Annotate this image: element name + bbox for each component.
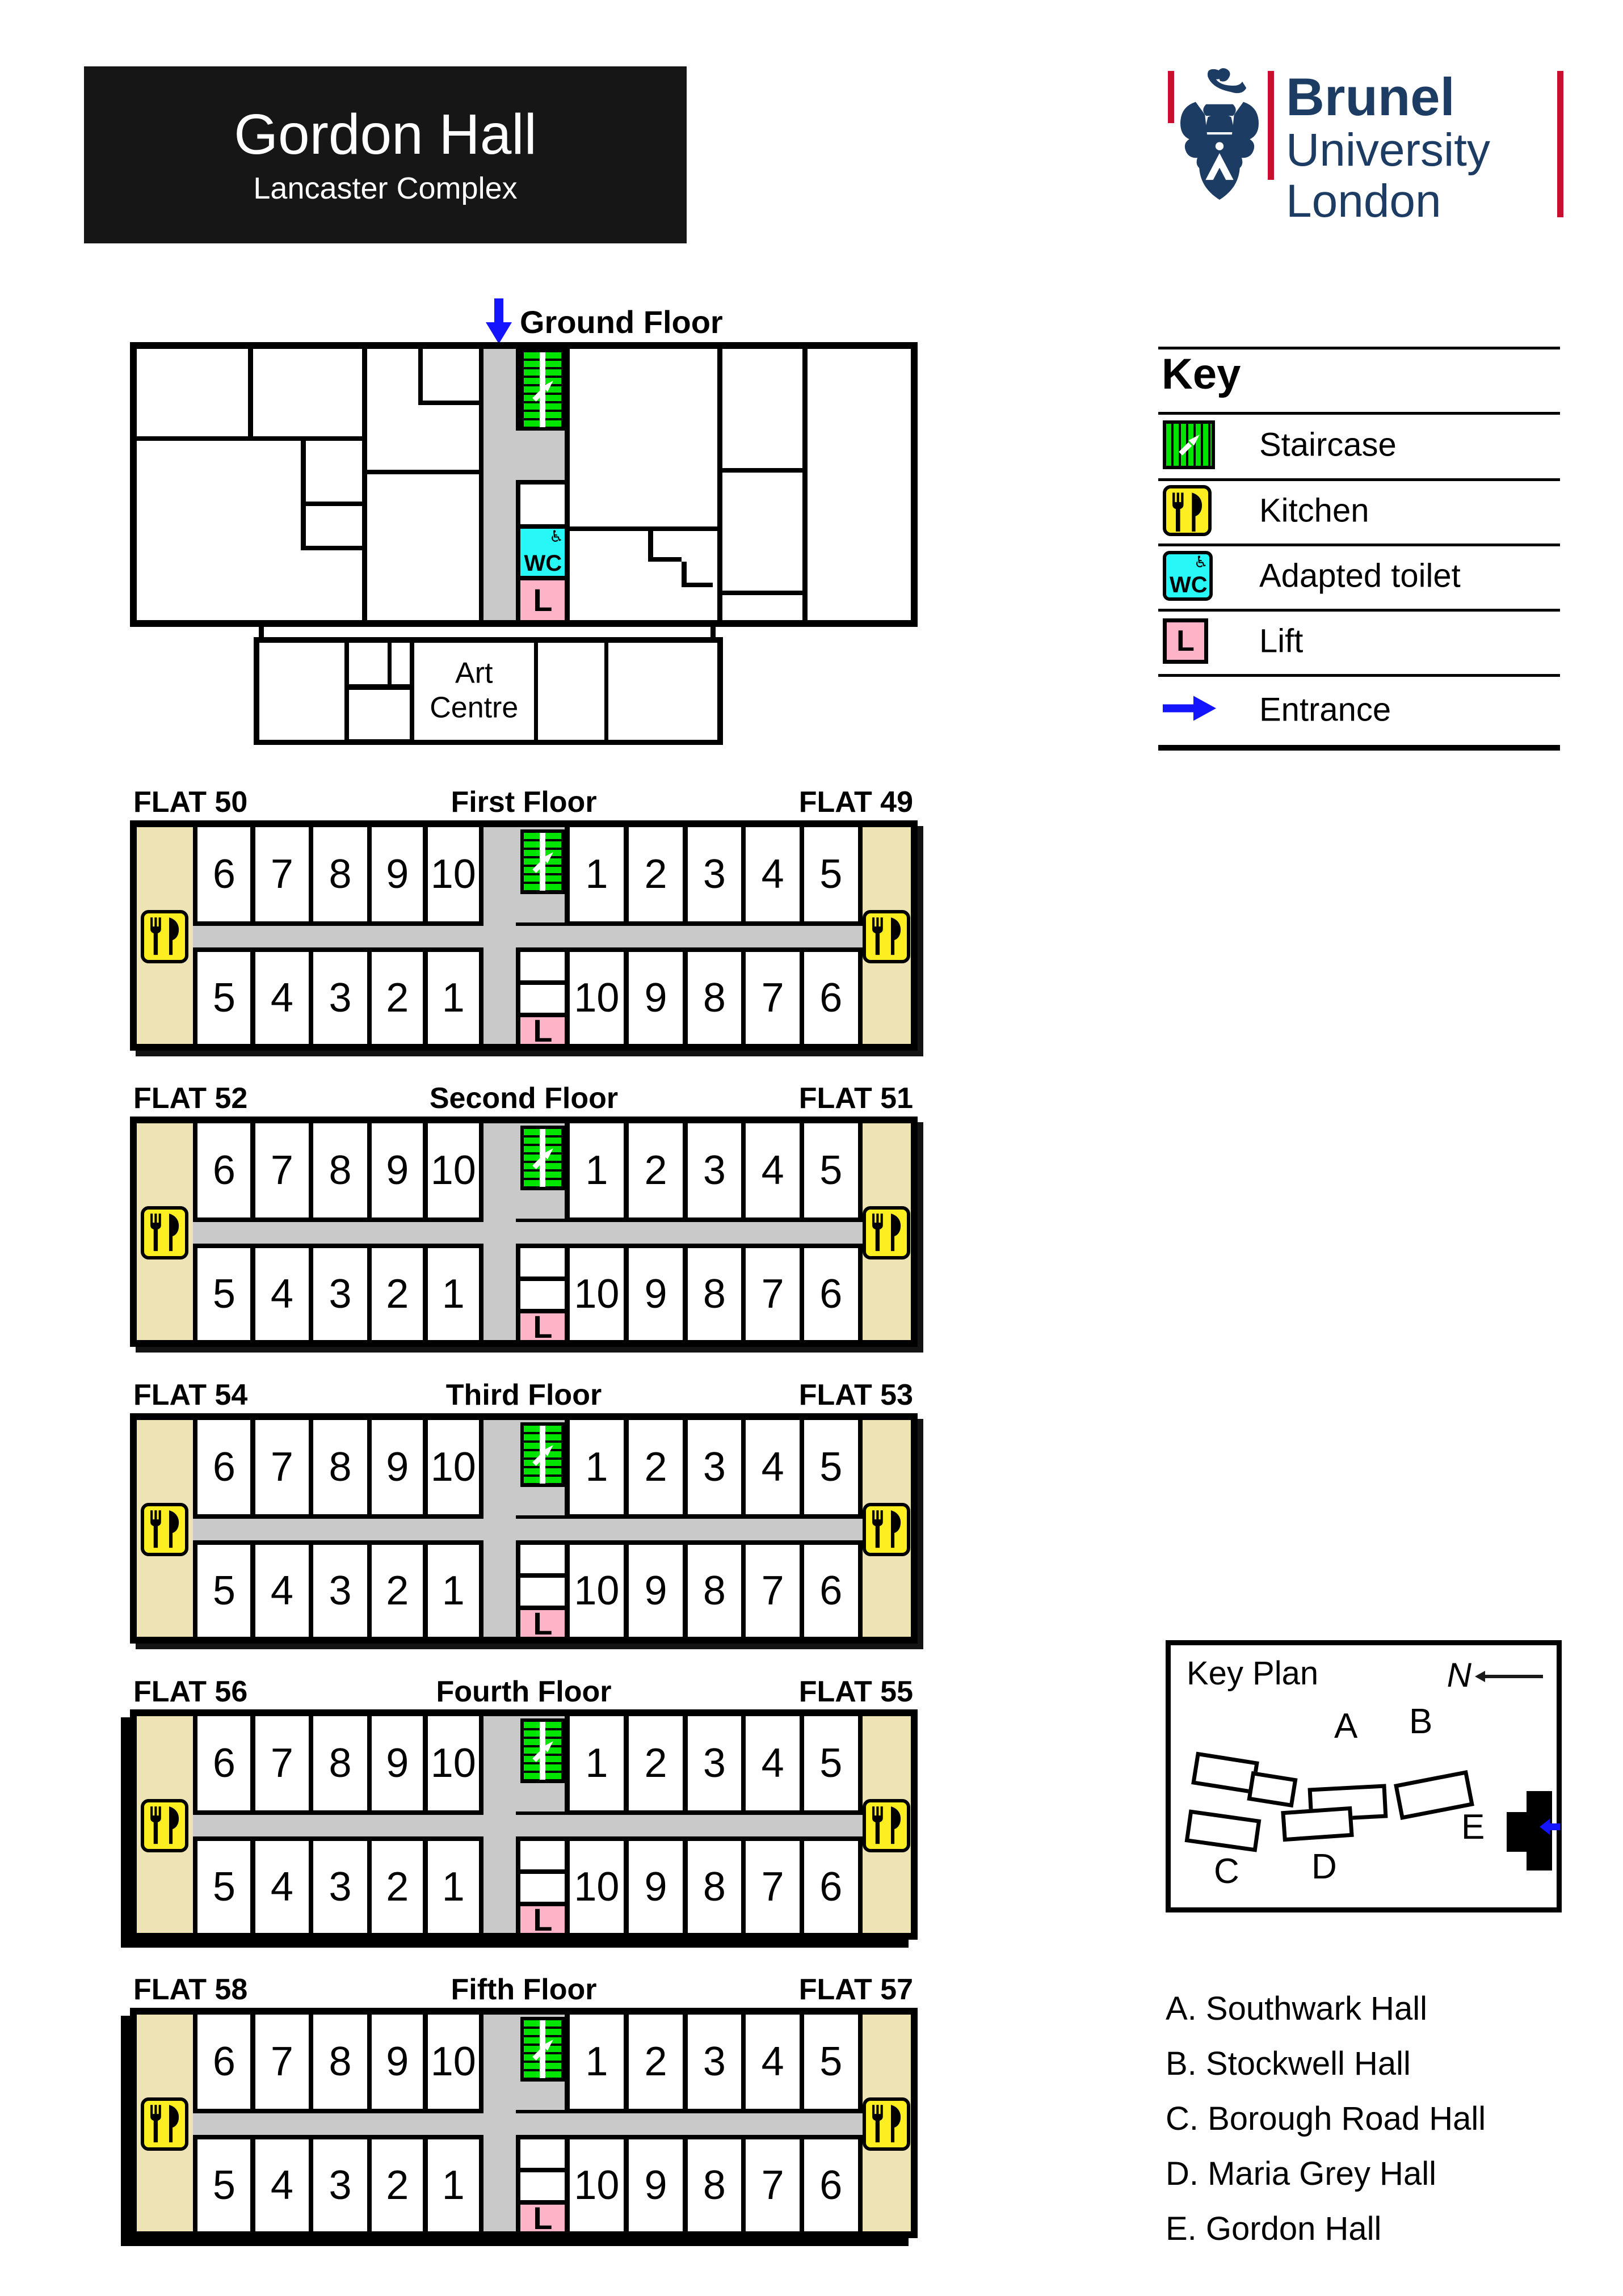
flat-label-right: FLAT 49 bbox=[799, 787, 913, 817]
room: 5 bbox=[197, 1545, 250, 1637]
room-number: 4 bbox=[271, 1568, 293, 1614]
room-number: 7 bbox=[271, 2038, 293, 2085]
logo-line-london: London bbox=[1286, 176, 1490, 227]
room-number: 6 bbox=[213, 2038, 236, 2085]
flat-label-right: FLAT 53 bbox=[799, 1380, 913, 1410]
room: 1 bbox=[570, 827, 624, 921]
hall-list-item: C. Borough Road Hall bbox=[1166, 2091, 1620, 2146]
room-number: 3 bbox=[329, 2162, 352, 2209]
logo-line-university: University bbox=[1286, 125, 1490, 176]
room-number: 5 bbox=[819, 1147, 842, 1194]
room-number: 1 bbox=[585, 1444, 608, 1490]
corridor-horizontal bbox=[193, 926, 863, 947]
room-number: 3 bbox=[703, 1147, 726, 1194]
lift-icon: L bbox=[520, 2205, 565, 2231]
room: 9 bbox=[372, 1420, 423, 1514]
kitchen-icon bbox=[863, 910, 910, 963]
room: 9 bbox=[372, 827, 423, 921]
room: 6 bbox=[197, 827, 250, 921]
hall-list-item: D. Maria Grey Hall bbox=[1166, 2146, 1620, 2201]
lift-icon: L bbox=[520, 1906, 565, 1933]
kitchen-icon bbox=[1163, 485, 1212, 536]
lift-label: L bbox=[533, 1012, 552, 1049]
room: 2 bbox=[629, 1123, 683, 1217]
art-room bbox=[349, 643, 388, 685]
floor-title: Fifth Floor bbox=[451, 1975, 596, 2004]
staircase-icon bbox=[520, 2017, 565, 2082]
room-number: 6 bbox=[213, 1444, 236, 1490]
logo-text: Brunel University London bbox=[1286, 69, 1490, 227]
room-number: 7 bbox=[271, 1147, 293, 1194]
room: 7 bbox=[255, 1123, 309, 1217]
room-number: 3 bbox=[703, 1740, 726, 1787]
room: 10 bbox=[428, 827, 479, 921]
gf-room bbox=[367, 474, 479, 620]
hall-list-item: E. Gordon Hall bbox=[1166, 2201, 1620, 2256]
kitchen-icon bbox=[144, 2101, 185, 2147]
kitchen-icon bbox=[144, 913, 185, 960]
halls-list: A. Southwark HallB. Stockwell HallC. Bor… bbox=[1166, 1981, 1620, 2256]
room-number: 5 bbox=[819, 851, 842, 898]
room-number: 9 bbox=[386, 2038, 409, 2085]
key-title: Key bbox=[1162, 353, 1241, 396]
page-subtitle: Lancaster Complex bbox=[253, 173, 517, 204]
key-separator bbox=[1158, 347, 1560, 349]
room: 7 bbox=[255, 827, 309, 921]
room: 7 bbox=[746, 952, 799, 1044]
art-room bbox=[392, 643, 410, 685]
key-separator bbox=[1158, 674, 1560, 677]
room-number: 1 bbox=[442, 1864, 465, 1910]
room: 4 bbox=[255, 2139, 309, 2231]
hall-shape-d bbox=[1281, 1806, 1353, 1842]
staircase-icon bbox=[1163, 420, 1215, 469]
room-number: 3 bbox=[329, 975, 352, 1021]
room: 7 bbox=[746, 1248, 799, 1340]
room: 2 bbox=[629, 827, 683, 921]
room-number: 9 bbox=[644, 975, 667, 1021]
flat-label-left: FLAT 56 bbox=[133, 1677, 247, 1707]
room: 8 bbox=[688, 952, 741, 1044]
room: 1 bbox=[428, 2139, 479, 2231]
room: 2 bbox=[372, 952, 423, 1044]
room-number: 8 bbox=[703, 1568, 726, 1614]
room-number: 10 bbox=[574, 1271, 619, 1317]
room-number: 9 bbox=[644, 1271, 667, 1317]
art-centre-block: Art Centre bbox=[254, 637, 723, 745]
room-number: 10 bbox=[431, 1740, 476, 1787]
gf-room bbox=[413, 405, 479, 469]
room: 7 bbox=[746, 1545, 799, 1637]
flat-label-left: FLAT 54 bbox=[133, 1380, 247, 1410]
room-number: 2 bbox=[644, 1444, 667, 1490]
room: 9 bbox=[629, 1248, 683, 1340]
wall bbox=[653, 557, 681, 562]
room: 6 bbox=[197, 1420, 250, 1514]
room-number: 10 bbox=[431, 1147, 476, 1194]
service-room bbox=[520, 1578, 565, 1606]
lift-label: L bbox=[533, 582, 552, 618]
key-separator bbox=[1158, 412, 1560, 415]
staircase-icon bbox=[520, 829, 565, 894]
kitchen-icon bbox=[866, 2101, 907, 2147]
room-number: 2 bbox=[644, 2038, 667, 2085]
room: 9 bbox=[629, 1841, 683, 1933]
kitchen-icon bbox=[144, 1210, 185, 1256]
floor-label-row: FLAT 56 Fourth Floor FLAT 55 bbox=[130, 1671, 918, 1707]
wheelchair-icon: ♿ bbox=[549, 529, 564, 545]
service-room bbox=[520, 2139, 565, 2168]
room: 4 bbox=[255, 1248, 309, 1340]
kitchen-icon bbox=[866, 913, 907, 960]
gf-room bbox=[295, 550, 362, 620]
kitchen-icon bbox=[141, 910, 188, 963]
gf-room bbox=[570, 349, 718, 526]
title-block: Gordon Hall Lancaster Complex bbox=[84, 66, 687, 243]
key-item-label: Adapted toilet bbox=[1259, 557, 1461, 595]
stair-arrow-icon bbox=[529, 1443, 556, 1469]
room: 9 bbox=[629, 1545, 683, 1637]
room: 8 bbox=[313, 827, 367, 921]
service-room bbox=[520, 985, 565, 1013]
room: 5 bbox=[197, 2139, 250, 2231]
kitchen-icon bbox=[144, 1506, 185, 1553]
floor-label-row: FLAT 58 Fifth Floor FLAT 57 bbox=[130, 1969, 918, 2004]
wall bbox=[648, 531, 653, 561]
room: 1 bbox=[570, 2015, 624, 2109]
floor-label-row: FLAT 50 First Floor FLAT 49 bbox=[130, 782, 918, 817]
staircase-icon bbox=[520, 349, 565, 431]
hall-shape-c bbox=[1185, 1809, 1262, 1852]
key-separator bbox=[1158, 609, 1560, 612]
room-number: 4 bbox=[762, 1740, 784, 1787]
room: 3 bbox=[688, 2015, 741, 2109]
page-title: Gordon Hall bbox=[234, 106, 537, 163]
room: 6 bbox=[197, 1716, 250, 1810]
kitchen-icon bbox=[863, 1799, 910, 1852]
gf-room bbox=[722, 473, 803, 591]
room: 7 bbox=[255, 1420, 309, 1514]
lift-label: L bbox=[533, 1605, 552, 1642]
corridor-horizontal bbox=[193, 2113, 863, 2135]
wheelchair-icon: ♿ bbox=[1194, 554, 1208, 570]
gf-room bbox=[137, 349, 248, 436]
room-number: 7 bbox=[762, 1864, 784, 1910]
wc-label: WC bbox=[524, 552, 562, 575]
room-number: 1 bbox=[442, 2162, 465, 2209]
room-number: 8 bbox=[703, 1271, 726, 1317]
room-number: 3 bbox=[703, 851, 726, 898]
kitchen-icon bbox=[863, 1503, 910, 1556]
key-item-label: Lift bbox=[1259, 622, 1303, 660]
room: 1 bbox=[570, 1420, 624, 1514]
kitchen-icon bbox=[866, 1802, 907, 1849]
room-number: 6 bbox=[819, 975, 842, 1021]
room-number: 8 bbox=[703, 1864, 726, 1910]
room: 8 bbox=[688, 1248, 741, 1340]
room-number: 1 bbox=[585, 2038, 608, 2085]
service-room bbox=[520, 1248, 565, 1277]
room-number: 9 bbox=[644, 1568, 667, 1614]
room: 9 bbox=[372, 1716, 423, 1810]
room: 3 bbox=[313, 1841, 367, 1933]
corridor bbox=[483, 349, 516, 620]
flat-label-right: FLAT 55 bbox=[799, 1677, 913, 1707]
room: 5 bbox=[804, 1123, 857, 1217]
room-number: 4 bbox=[762, 1147, 784, 1194]
kitchen-icon bbox=[141, 1206, 188, 1259]
room: 4 bbox=[255, 952, 309, 1044]
room: 10 bbox=[570, 1841, 624, 1933]
floor-label-row: FLAT 54 Third Floor FLAT 53 bbox=[130, 1375, 918, 1410]
room-number: 10 bbox=[574, 1864, 619, 1910]
room-number: 4 bbox=[762, 851, 784, 898]
room: 4 bbox=[255, 1841, 309, 1933]
room: 5 bbox=[804, 2015, 857, 2109]
room: 5 bbox=[197, 952, 250, 1044]
north-label: N bbox=[1447, 1655, 1471, 1695]
room: 6 bbox=[804, 1248, 857, 1340]
gf-room bbox=[306, 506, 363, 546]
room-number: 2 bbox=[644, 1147, 667, 1194]
room: 2 bbox=[629, 1420, 683, 1514]
room: 5 bbox=[197, 1841, 250, 1933]
room: 5 bbox=[804, 1420, 857, 1514]
kitchen-icon bbox=[863, 2097, 910, 2151]
stair-arrow-icon bbox=[529, 378, 556, 405]
key-plan-title: Key Plan bbox=[1187, 1654, 1318, 1692]
room-number: 4 bbox=[762, 1444, 784, 1490]
room-number: 6 bbox=[819, 1568, 842, 1614]
room-number: 3 bbox=[329, 1568, 352, 1614]
room: 2 bbox=[372, 1545, 423, 1637]
gf-room bbox=[808, 349, 911, 620]
room-number: 7 bbox=[762, 1568, 784, 1614]
room: 9 bbox=[372, 1123, 423, 1217]
room: 3 bbox=[688, 827, 741, 921]
floor-plan-block: 6789101234554321109876 L bbox=[130, 820, 918, 1051]
room: 2 bbox=[372, 2139, 423, 2231]
room-number: 7 bbox=[762, 975, 784, 1021]
adapted-toilet-icon: WC♿ bbox=[1163, 551, 1213, 601]
gordon-entrance-arrow-icon bbox=[1540, 1819, 1560, 1835]
room: 2 bbox=[629, 1716, 683, 1810]
room: 6 bbox=[804, 952, 857, 1044]
room-number: 5 bbox=[213, 975, 236, 1021]
flat-label-left: FLAT 52 bbox=[133, 1084, 247, 1113]
room-number: 10 bbox=[431, 1444, 476, 1490]
lift-label: L bbox=[1176, 624, 1195, 658]
floor-plan-block: 6789101234554321109876 L bbox=[130, 1709, 918, 1940]
room-number: 8 bbox=[329, 1444, 352, 1490]
room: 1 bbox=[428, 952, 479, 1044]
room: 8 bbox=[313, 1123, 367, 1217]
art-centre-label: Art Centre bbox=[414, 656, 534, 726]
room-number: 5 bbox=[213, 1568, 236, 1614]
room-number: 6 bbox=[819, 1271, 842, 1317]
room-number: 10 bbox=[431, 2038, 476, 2085]
room: 5 bbox=[804, 1716, 857, 1810]
room-number: 5 bbox=[819, 1444, 842, 1490]
corridor-horizontal bbox=[193, 1222, 863, 1244]
room-number: 10 bbox=[574, 975, 619, 1021]
logo-redbar-mid bbox=[1268, 71, 1274, 180]
room-number: 3 bbox=[329, 1271, 352, 1317]
art-room bbox=[349, 690, 410, 740]
key-separator bbox=[1158, 544, 1560, 546]
ground-floor-title: Ground Floor bbox=[520, 306, 723, 338]
room-number: 2 bbox=[386, 1271, 409, 1317]
room: 8 bbox=[688, 1841, 741, 1933]
room: 3 bbox=[688, 1420, 741, 1514]
art-room bbox=[259, 643, 345, 740]
room-number: 4 bbox=[271, 975, 293, 1021]
room-number: 1 bbox=[442, 1271, 465, 1317]
art-room bbox=[608, 643, 717, 740]
gf-room bbox=[520, 485, 565, 524]
room-number: 2 bbox=[386, 2162, 409, 2209]
lift-icon: L bbox=[520, 1610, 565, 1637]
room-number: 10 bbox=[574, 2162, 619, 2209]
room: 4 bbox=[255, 1545, 309, 1637]
gf-room bbox=[253, 349, 363, 436]
room-number: 1 bbox=[442, 1568, 465, 1614]
room: 4 bbox=[746, 827, 799, 921]
stair-arrow-icon bbox=[529, 1739, 556, 1765]
service-room bbox=[520, 2172, 565, 2200]
key-separator bbox=[1158, 478, 1560, 481]
room-number: 4 bbox=[271, 1271, 293, 1317]
hall-label-e: E bbox=[1461, 1810, 1485, 1845]
brunel-logo: Brunel University London bbox=[1166, 64, 1566, 225]
lift-label: L bbox=[533, 1308, 552, 1345]
room-number: 9 bbox=[386, 1740, 409, 1787]
kitchen-icon bbox=[1166, 488, 1208, 537]
room-number: 6 bbox=[213, 1740, 236, 1787]
room-number: 3 bbox=[703, 2038, 726, 2085]
adapted-toilet-icon: WC♿ bbox=[520, 529, 565, 575]
room-number: 7 bbox=[271, 1444, 293, 1490]
room: 10 bbox=[428, 1716, 479, 1810]
service-room bbox=[520, 1281, 565, 1309]
room-number: 5 bbox=[213, 2162, 236, 2209]
room: 1 bbox=[570, 1123, 624, 1217]
room: 3 bbox=[688, 1716, 741, 1810]
room-number: 2 bbox=[386, 1864, 409, 1910]
entrance-arrow-icon bbox=[1163, 695, 1217, 725]
room-number: 5 bbox=[213, 1271, 236, 1317]
floor-title: Fourth Floor bbox=[436, 1677, 611, 1707]
brunel-crest-icon bbox=[1176, 66, 1263, 220]
hall-shape-west-2 bbox=[1247, 1771, 1297, 1808]
gf-room bbox=[137, 441, 301, 620]
room: 6 bbox=[804, 1545, 857, 1637]
room-number: 10 bbox=[574, 1568, 619, 1614]
room: 6 bbox=[197, 1123, 250, 1217]
floor-plan-block: 6789101234554321109876 L bbox=[130, 2008, 918, 2238]
stair-arrow-icon bbox=[1176, 432, 1202, 458]
room: 4 bbox=[746, 1420, 799, 1514]
kitchen-icon bbox=[141, 2097, 188, 2151]
room: 8 bbox=[313, 2015, 367, 2109]
room: 10 bbox=[428, 1420, 479, 1514]
gf-room bbox=[367, 349, 418, 470]
kitchen-icon bbox=[866, 1506, 907, 1553]
ground-floor-plan: WC♿L bbox=[130, 342, 918, 627]
room: 8 bbox=[688, 2139, 741, 2231]
kitchen-icon bbox=[141, 1503, 188, 1556]
lift-icon: L bbox=[1163, 618, 1208, 664]
gf-room bbox=[722, 595, 803, 620]
room: 1 bbox=[428, 1248, 479, 1340]
room-number: 2 bbox=[644, 851, 667, 898]
room: 7 bbox=[255, 1716, 309, 1810]
north-arrow-icon bbox=[1475, 1668, 1543, 1685]
room: 10 bbox=[570, 2139, 624, 2231]
kitchen-icon bbox=[863, 1206, 910, 1259]
room-number: 5 bbox=[213, 1864, 236, 1910]
room-number: 8 bbox=[703, 2162, 726, 2209]
flat-label-left: FLAT 50 bbox=[133, 787, 247, 817]
wall bbox=[682, 562, 687, 587]
service-room bbox=[520, 1841, 565, 1869]
room-number: 8 bbox=[329, 851, 352, 898]
staircase-icon bbox=[520, 1718, 565, 1783]
room: 3 bbox=[313, 2139, 367, 2231]
room: 9 bbox=[629, 952, 683, 1044]
key-separator bbox=[1158, 745, 1560, 751]
wc-label: WC bbox=[1170, 574, 1208, 596]
art-centre-connector-right bbox=[710, 626, 716, 638]
floor-label-row: FLAT 52 Second Floor FLAT 51 bbox=[130, 1078, 918, 1113]
room: 2 bbox=[372, 1841, 423, 1933]
room-number: 7 bbox=[271, 851, 293, 898]
room: 6 bbox=[804, 2139, 857, 2231]
floor-title: Third Floor bbox=[446, 1380, 602, 1410]
room: 8 bbox=[313, 1420, 367, 1514]
key-item-label: Entrance bbox=[1259, 691, 1391, 729]
room-number: 7 bbox=[271, 1740, 293, 1787]
service-room bbox=[520, 1545, 565, 1573]
room: 1 bbox=[428, 1841, 479, 1933]
room: 1 bbox=[428, 1545, 479, 1637]
gf-room bbox=[722, 349, 803, 468]
room: 9 bbox=[372, 2015, 423, 2109]
flat-label-right: FLAT 51 bbox=[799, 1084, 913, 1113]
room-number: 1 bbox=[585, 1740, 608, 1787]
room-number: 3 bbox=[703, 1444, 726, 1490]
room-number: 2 bbox=[386, 975, 409, 1021]
hall-label-a: A bbox=[1334, 1709, 1357, 1744]
room-number: 8 bbox=[329, 2038, 352, 2085]
room: 3 bbox=[313, 1248, 367, 1340]
key-plan: Key Plan N A B C D E bbox=[1166, 1640, 1562, 1912]
room-number: 6 bbox=[819, 2162, 842, 2209]
room: 4 bbox=[746, 1123, 799, 1217]
room: 10 bbox=[570, 952, 624, 1044]
room: 8 bbox=[313, 1716, 367, 1810]
room: 7 bbox=[746, 2139, 799, 2231]
art-room: Art Centre bbox=[414, 643, 534, 740]
room-number: 8 bbox=[703, 975, 726, 1021]
room-number: 9 bbox=[386, 1444, 409, 1490]
room: 5 bbox=[804, 827, 857, 921]
room-number: 6 bbox=[819, 1864, 842, 1910]
room: 2 bbox=[372, 1248, 423, 1340]
floor-title: Second Floor bbox=[430, 1084, 618, 1113]
room-number: 4 bbox=[271, 2162, 293, 2209]
room-number: 2 bbox=[644, 1740, 667, 1787]
